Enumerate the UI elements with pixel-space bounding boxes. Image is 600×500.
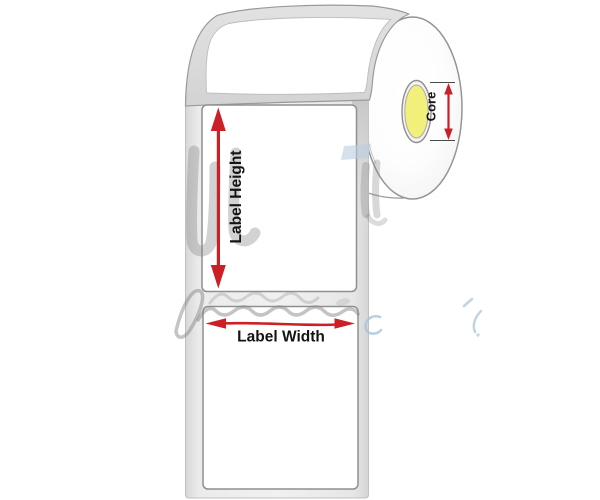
label-height-text: Label Height bbox=[228, 150, 245, 243]
label-roll-diagram: Label Height Label Width Core bbox=[0, 0, 600, 500]
label-width-text: Label Width bbox=[237, 329, 325, 346]
watermark-blue-flag bbox=[341, 144, 371, 160]
label-roll-diagram-canvas: Label Height Label Width Core bbox=[0, 0, 600, 500]
label-1 bbox=[202, 105, 357, 292]
core-text: Core bbox=[424, 92, 439, 122]
top-label-on-roll bbox=[206, 17, 391, 94]
